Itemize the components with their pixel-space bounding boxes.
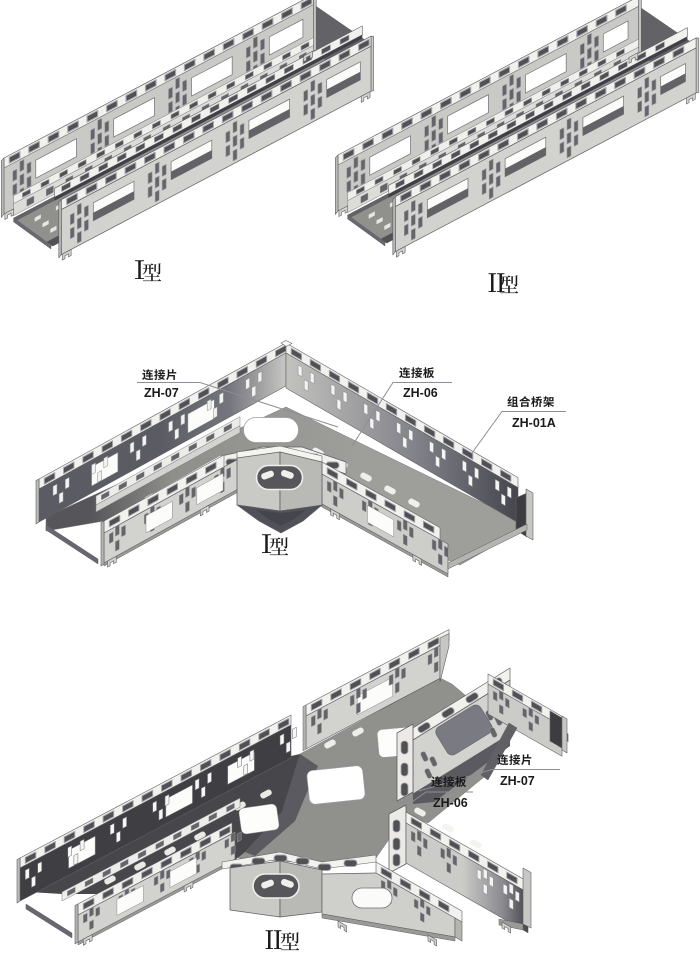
svg-text:ZH-07: ZH-07 [144,386,179,400]
svg-text:ZH-06: ZH-06 [433,796,468,810]
svg-text:ZH-01A: ZH-01A [512,416,556,430]
svg-text:ZH-06: ZH-06 [403,386,438,400]
svg-text:ZH-07: ZH-07 [500,774,535,788]
